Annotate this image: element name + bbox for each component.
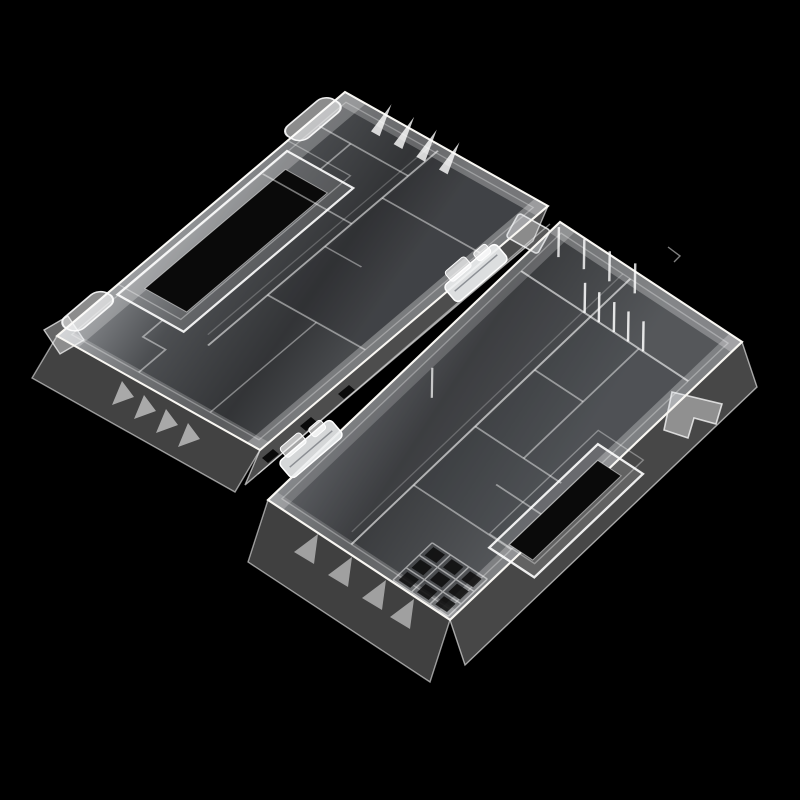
product-photo: Product photograph of a translucent whit… xyxy=(0,0,800,800)
photo-stage: Product photograph of a translucent whit… xyxy=(0,0,800,800)
